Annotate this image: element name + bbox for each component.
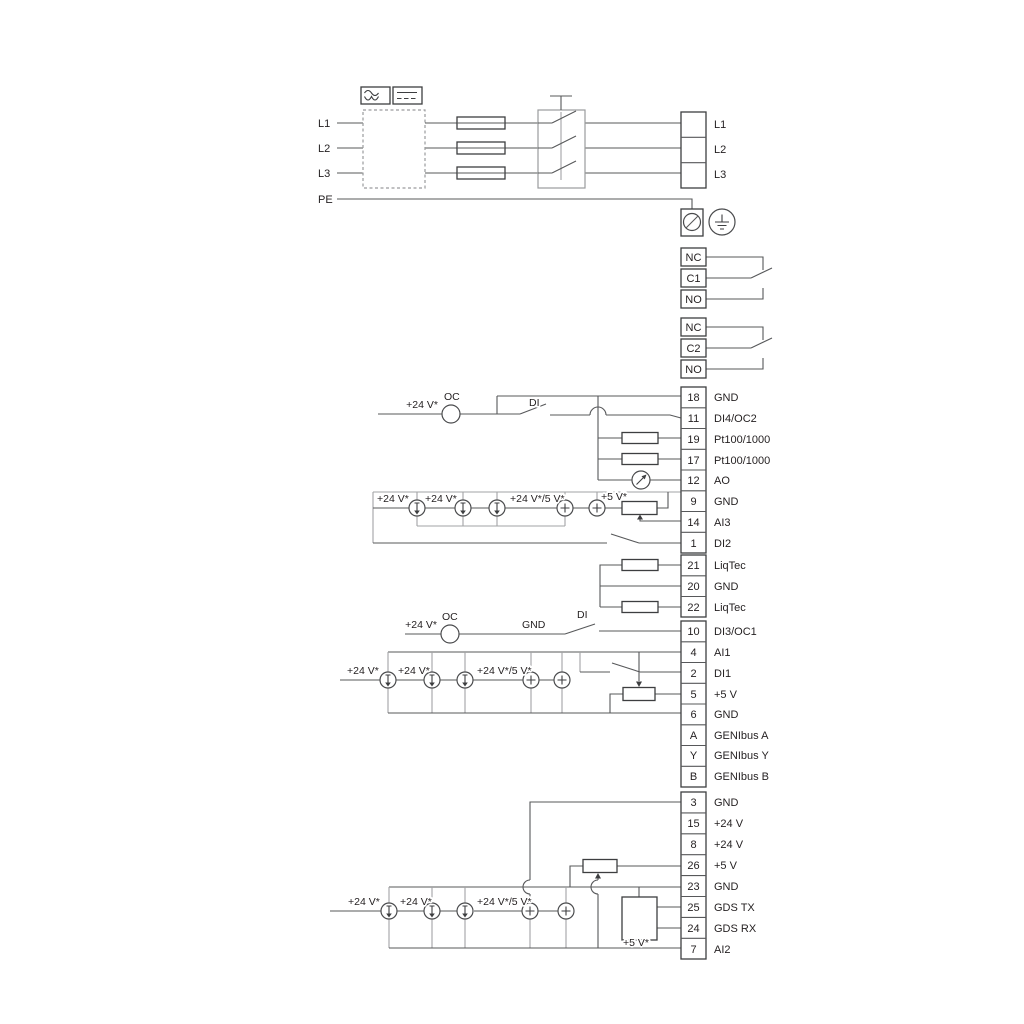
pt100-resistor-1 xyxy=(622,433,658,444)
label-l1-out: L1 xyxy=(714,119,726,131)
relay2-nc: NC xyxy=(686,322,702,334)
terminal-label: GDS TX xyxy=(714,902,755,914)
liqtec-sensor-1 xyxy=(622,560,658,571)
plus-source-icon xyxy=(558,903,574,919)
terminal-label: GDS RX xyxy=(714,923,757,935)
di-label: DI xyxy=(577,609,588,621)
pe-terminal xyxy=(681,209,735,236)
ao-meter xyxy=(632,471,650,489)
label-l2-in: L2 xyxy=(318,143,330,155)
terminal-label: +5 V xyxy=(714,689,738,701)
gnd-label: GND xyxy=(522,619,546,631)
terminal-number: 18 xyxy=(687,392,699,404)
v24-label: +24 V* xyxy=(377,493,409,505)
v24-label: +24 V* xyxy=(405,619,437,631)
liqtec-sensor-2 xyxy=(622,602,658,613)
terminal-number: 10 xyxy=(687,626,699,638)
terminal-number: 1 xyxy=(690,538,696,550)
terminal-label: Pt100/1000 xyxy=(714,434,770,446)
terminal-label: GENIbus B xyxy=(714,771,769,783)
terminal-number: 23 xyxy=(687,881,699,893)
terminal-label: DI3/OC1 xyxy=(714,626,757,638)
mains-wiring xyxy=(337,123,692,209)
terminal-number: 8 xyxy=(690,839,696,851)
terminal-number: 21 xyxy=(687,560,699,572)
terminal-number: 22 xyxy=(687,602,699,614)
terminal-number: 9 xyxy=(690,496,696,508)
terminal-label: +24 V xyxy=(714,818,744,830)
relay1-nc: NC xyxy=(686,252,702,264)
terminal-number: 14 xyxy=(687,517,699,529)
pt100-resistor-2 xyxy=(622,454,658,465)
terminal-number: 19 xyxy=(687,434,699,446)
terminal-label: GND xyxy=(714,797,739,809)
terminal-label: LiqTec xyxy=(714,602,746,614)
current-source-icon xyxy=(455,500,471,516)
wiring-diagram: L1 L2 L3 PE L1 L2 L3 NC C1 NO NC C2 NO 1… xyxy=(0,0,1024,1024)
terminal-number: 2 xyxy=(690,668,696,680)
di-label: DI xyxy=(529,397,540,409)
terminal-number: 4 xyxy=(690,647,696,659)
label-l3-in: L3 xyxy=(318,168,330,180)
current-source-icon xyxy=(457,672,473,688)
terminal-label: GENIbus A xyxy=(714,730,769,742)
label-l2-out: L2 xyxy=(714,144,726,156)
current-source-icon xyxy=(380,672,396,688)
relay2-no: NO xyxy=(685,364,702,376)
current-source-icon xyxy=(381,903,397,919)
terminal-number: A xyxy=(690,730,698,742)
fuses xyxy=(457,117,505,179)
main-switch xyxy=(538,96,585,188)
current-source-icon xyxy=(409,500,425,516)
current-source-icon xyxy=(489,500,505,516)
label-l1-in: L1 xyxy=(318,118,330,130)
v24v5-label: +24 V*/5 V* xyxy=(477,665,532,677)
v24-label: +24 V* xyxy=(406,399,438,411)
terminal-number: 15 xyxy=(687,818,699,830)
terminal-number: 25 xyxy=(687,902,699,914)
terminal-label: +24 V xyxy=(714,839,744,851)
ai2-potentiometer xyxy=(583,860,617,879)
dc-symbol-box xyxy=(393,87,422,104)
terminal-label: Pt100/1000 xyxy=(714,455,770,467)
terminal-number: 20 xyxy=(687,581,699,593)
relay-wiring xyxy=(706,257,772,369)
io1-wiring xyxy=(373,396,681,543)
pt100-sensors xyxy=(622,433,658,465)
terminal-number: B xyxy=(690,771,697,783)
v24-label: +24 V* xyxy=(348,896,380,908)
mains-terminal-block xyxy=(681,112,706,188)
terminal-label: AI1 xyxy=(714,647,731,659)
terminal-label: LiqTec xyxy=(714,560,746,572)
relay1-c1: C1 xyxy=(686,273,700,285)
v24-label: +24 V* xyxy=(398,665,430,677)
terminal-label: AO xyxy=(714,475,730,487)
ai1-potentiometer xyxy=(623,682,655,701)
terminal-label: AI3 xyxy=(714,517,731,529)
v5-label: +5 V* xyxy=(623,937,649,949)
oc-label: OC xyxy=(444,391,460,403)
terminal-label: DI1 xyxy=(714,668,731,680)
oc-circle-2 xyxy=(441,625,459,643)
terminal-label: GND xyxy=(714,709,739,721)
terminal-number: 24 xyxy=(687,923,699,935)
terminal-number: 11 xyxy=(688,413,699,425)
terminal-label: +5 V xyxy=(714,860,738,872)
terminal-label: GND xyxy=(714,496,739,508)
v24-label: +24 V* xyxy=(400,896,432,908)
frequency-converter-box xyxy=(361,87,425,188)
terminal-number: 12 xyxy=(687,475,699,487)
terminal-number: Y xyxy=(690,750,698,762)
current-source-icon xyxy=(457,903,473,919)
gds-sensor-box xyxy=(622,897,657,940)
terminal-label: GENIbus Y xyxy=(714,750,769,762)
v24v5-label: +24 V*/5 V* xyxy=(477,896,532,908)
oc-label: OC xyxy=(442,611,458,623)
terminal-number: 26 xyxy=(687,860,699,872)
v24-label: +24 V* xyxy=(425,493,457,505)
terminal-label: DI4/OC2 xyxy=(714,413,757,425)
label-l3-out: L3 xyxy=(714,169,726,181)
terminal-number: 6 xyxy=(690,709,696,721)
label-pe: PE xyxy=(318,194,333,206)
terminal-label: GND xyxy=(714,881,739,893)
terminal-label: DI2 xyxy=(714,538,731,550)
relay1-no: NO xyxy=(685,294,702,306)
terminal-label: GND xyxy=(714,392,739,404)
oc-circle-1 xyxy=(442,405,460,423)
v5-label: +5 V* xyxy=(601,491,627,503)
terminal-number: 5 xyxy=(690,689,696,701)
terminal-number: 3 xyxy=(690,797,696,809)
liqtec-labels: 21LiqTec 20GND 22LiqTec xyxy=(687,560,746,614)
terminal-number: 7 xyxy=(690,944,696,956)
relay2-c2: C2 xyxy=(686,343,700,355)
liqtec-wiring xyxy=(600,565,681,607)
ai3-potentiometer xyxy=(622,502,657,520)
terminal-label: AI2 xyxy=(714,944,731,956)
terminal-label: GND xyxy=(714,581,739,593)
terminal-number: 17 xyxy=(687,455,699,467)
v24v5-label: +24 V*/5 V* xyxy=(510,493,565,505)
plus-source-icon xyxy=(554,672,570,688)
diagram-canvas: L1 L2 L3 PE L1 L2 L3 NC C1 NO NC C2 NO 1… xyxy=(0,0,1024,1024)
v24-label: +24 V* xyxy=(347,665,379,677)
io2-terminal-strip xyxy=(681,621,706,787)
